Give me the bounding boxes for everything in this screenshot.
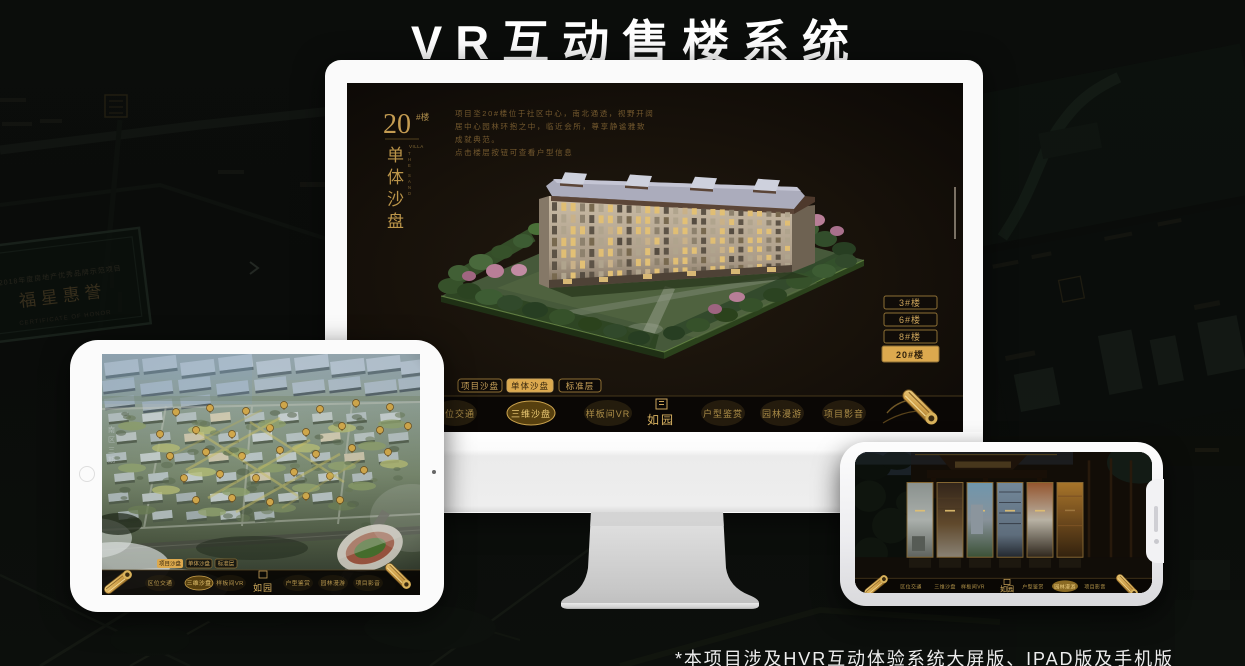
svg-text:样板间VR: 样板间VR <box>586 408 631 419</box>
svg-text:区位交通: 区位交通 <box>148 579 173 587</box>
svg-text:T: T <box>408 151 411 156</box>
svg-text:盘: 盘 <box>387 212 404 231</box>
svg-text:样板间VR: 样板间VR <box>961 582 985 590</box>
svg-text:如园: 如园 <box>1000 584 1014 593</box>
svg-text:如园: 如园 <box>647 412 675 427</box>
svg-text:3#楼: 3#楼 <box>899 297 921 308</box>
svg-text:项目坔20#楼位于社区中心，南北通透，视野开阔: 项目坔20#楼位于社区中心，南北通透，视野开阔 <box>455 108 654 118</box>
svg-text:体: 体 <box>387 168 404 187</box>
svg-text:项目沙盘: 项目沙盘 <box>159 560 182 568</box>
svg-text:6#楼: 6#楼 <box>899 314 921 325</box>
svg-text:8#楼: 8#楼 <box>899 331 921 342</box>
svg-text:项目影音: 项目影音 <box>356 579 381 587</box>
svg-text:项目影音: 项目影音 <box>824 408 864 419</box>
svg-text:成就典范。: 成就典范。 <box>455 134 501 144</box>
svg-text:户型鉴赏: 户型鉴赏 <box>703 408 743 419</box>
svg-text:S: S <box>408 173 411 178</box>
svg-text:标准层: 标准层 <box>218 560 235 568</box>
svg-text:三维沙盘: 三维沙盘 <box>511 408 551 419</box>
svg-text:三维沙盘: 三维沙盘 <box>934 582 956 590</box>
svg-text:三维沙盘: 三维沙盘 <box>187 579 212 587</box>
svg-text:N: N <box>408 185 411 190</box>
svg-text:区位交通: 区位交通 <box>900 582 922 590</box>
svg-text:项目影音: 项目影音 <box>1084 582 1106 590</box>
svg-text:A: A <box>408 179 411 184</box>
svg-text:H: H <box>408 157 411 162</box>
svg-text:VILLA: VILLA <box>409 144 424 149</box>
svg-text:E: E <box>408 163 411 168</box>
svg-text:20#楼: 20#楼 <box>896 349 924 360</box>
svg-text:单体沙盘: 单体沙盘 <box>188 560 211 568</box>
svg-text:项目沙盘: 项目沙盘 <box>461 381 499 391</box>
svg-text:点击楼层按钮可查看户型信息: 点击楼层按钮可查看户型信息 <box>455 147 573 157</box>
svg-text:单体沙盘: 单体沙盘 <box>511 381 549 391</box>
svg-text:居中心园林环抱之中，临近会所，尊享静谧雅致: 居中心园林环抱之中，临近会所，尊享静谧雅致 <box>455 121 646 131</box>
svg-text:园林漫游: 园林漫游 <box>1054 582 1076 590</box>
svg-text:沙: 沙 <box>387 190 404 209</box>
svg-text:如园: 如园 <box>253 582 273 593</box>
svg-text:户型鉴赏: 户型鉴赏 <box>286 579 311 587</box>
svg-text:单: 单 <box>387 146 404 165</box>
svg-text:D: D <box>408 191 411 196</box>
svg-text:园林漫游: 园林漫游 <box>321 579 346 587</box>
svg-text:样板间VR: 样板间VR <box>216 579 243 587</box>
svg-text:20: 20 <box>383 109 411 140</box>
svg-text:园林漫游: 园林漫游 <box>762 408 802 419</box>
svg-text:户型鉴赏: 户型鉴赏 <box>1022 582 1044 590</box>
svg-text:#楼: #楼 <box>416 112 430 122</box>
svg-text:标准层: 标准层 <box>566 381 595 391</box>
